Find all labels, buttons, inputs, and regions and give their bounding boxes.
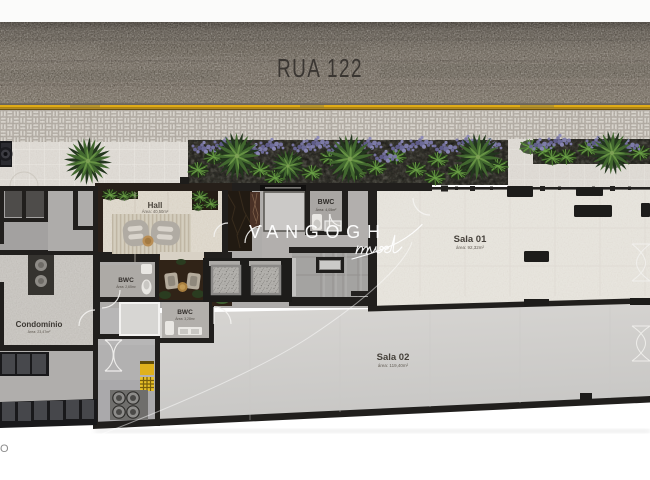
svg-text:Área: 40,50m²: Área: 40,50m² — [142, 209, 169, 214]
svg-text:Condomínio: Condomínio — [16, 320, 63, 329]
svg-text:VANGOGH: VANGOGH — [249, 222, 387, 242]
svg-text:Área: 3,28m²: Área: 3,28m² — [175, 317, 195, 321]
svg-text:BWC: BWC — [318, 199, 335, 206]
svg-text:área: 119,40m²: área: 119,40m² — [378, 363, 409, 368]
svg-text:BWC: BWC — [177, 309, 193, 316]
svg-text:Sala 01: Sala 01 — [454, 234, 487, 245]
svg-text:Área: 23,47m²: Área: 23,47m² — [28, 330, 52, 334]
svg-text:Sala 02: Sala 02 — [377, 352, 410, 363]
svg-text:RUA 122: RUA 122 — [277, 53, 363, 83]
svg-text:Área: 4,05m²: Área: 4,05m² — [316, 208, 338, 212]
svg-text:O: O — [0, 443, 9, 455]
svg-text:área: 92,32m²: área: 92,32m² — [456, 245, 485, 250]
svg-text:BWC: BWC — [118, 277, 134, 284]
svg-text:Área: 2,65m²: Área: 2,65m² — [116, 285, 136, 289]
